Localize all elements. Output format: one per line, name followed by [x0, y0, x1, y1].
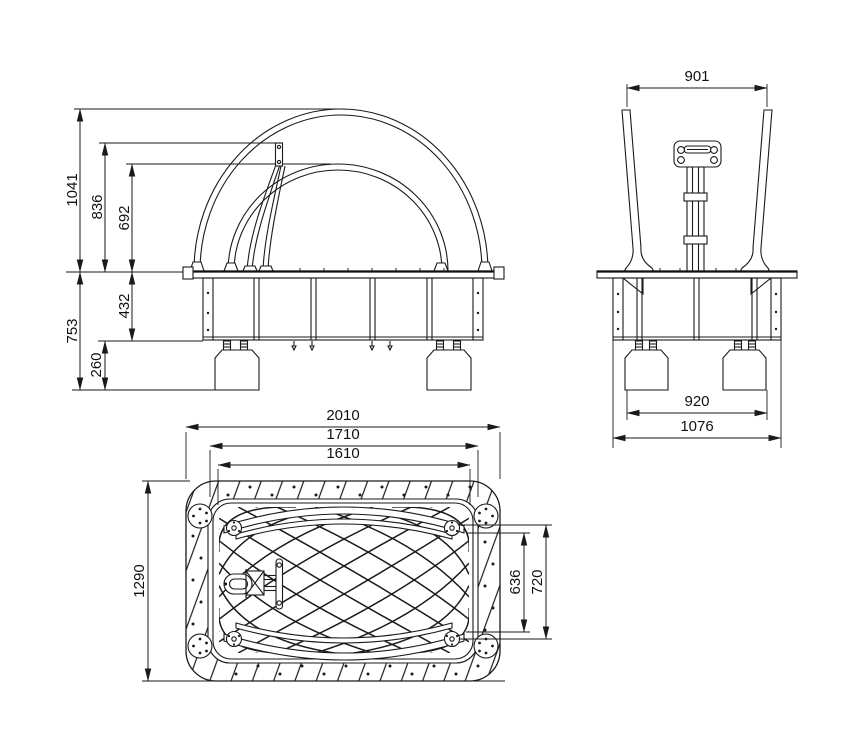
side-center-post [674, 141, 721, 272]
side-post-right [740, 110, 772, 272]
side-gusset-right [751, 278, 771, 294]
front-frame-rivets [207, 292, 479, 331]
dim-label: 1710 [326, 426, 359, 443]
front-view: 1041 836 692 753 432 260 [64, 109, 504, 390]
side-frame-rivets [617, 293, 777, 330]
deck-right-cap [494, 267, 504, 279]
dim-label: 720 [529, 569, 546, 594]
dim-label: 920 [684, 393, 709, 410]
dimension-depth-frame: 432 [116, 272, 133, 341]
dimension-footing-span: 920 [627, 393, 767, 413]
technical-drawing-canvas: 1041 836 692 753 432 260 901 [0, 0, 860, 740]
tube-collar [684, 236, 707, 244]
dim-label: 836 [89, 194, 106, 219]
plan-view: 2010 1710 1610 1290 636 [131, 407, 552, 681]
dim-label: 1290 [131, 564, 148, 597]
tube-collar [684, 193, 707, 201]
side-frame-posts [637, 278, 757, 340]
dimension-length-total: 2010 [186, 407, 500, 427]
front-anchor-marks [292, 341, 392, 350]
dimension-base-width: 1076 [613, 418, 781, 438]
dim-label: 901 [684, 68, 709, 85]
inner-arc-tube [228, 164, 448, 271]
dim-label: 432 [116, 293, 133, 318]
front-frame [203, 278, 483, 340]
side-post-left [622, 110, 654, 272]
dim-label: 692 [116, 205, 133, 230]
front-anchor-bolts [224, 341, 461, 350]
front-footing-right [427, 350, 471, 390]
dimension-length-frame: 1710 [210, 426, 478, 446]
dim-label: 753 [64, 318, 81, 343]
dimension-net-width: 636 [507, 533, 524, 632]
side-view: 901 [597, 68, 797, 448]
handle-plate [276, 143, 283, 166]
front-footing-left [215, 350, 259, 390]
handle-support-tube [247, 166, 276, 271]
drawing-svg: 1041 836 692 753 432 260 901 [0, 0, 860, 740]
dim-label: 636 [507, 569, 524, 594]
dim-label: 1610 [326, 445, 359, 462]
side-anchor-bolts [636, 341, 756, 350]
dim-label: 2010 [326, 407, 359, 424]
outer-arc-right-base [478, 262, 492, 271]
outer-arc-tube [194, 109, 488, 271]
dimension-depth-total: 753 [64, 272, 81, 390]
side-footing-left [625, 350, 668, 390]
dimension-footing-height: 260 [88, 341, 105, 390]
side-footing-right [723, 350, 766, 390]
deck-left-cap [183, 267, 193, 279]
dim-label: 260 [88, 352, 105, 377]
side-frame [613, 278, 781, 340]
dimension-height-handle: 836 [89, 143, 106, 272]
dim-label: 1041 [64, 173, 81, 206]
dimension-length-mat: 1610 [218, 445, 470, 465]
front-frame-posts [254, 278, 432, 340]
dimension-width-total: 1290 [131, 481, 148, 681]
dim-label: 1076 [680, 418, 713, 435]
dimension-height-total: 1041 [64, 109, 81, 272]
dimension-top-width: 901 [627, 68, 767, 88]
dimension-height-inner-arc: 692 [116, 164, 133, 272]
dimension-tube-width: 720 [529, 525, 546, 639]
side-gusset-left [623, 278, 643, 294]
